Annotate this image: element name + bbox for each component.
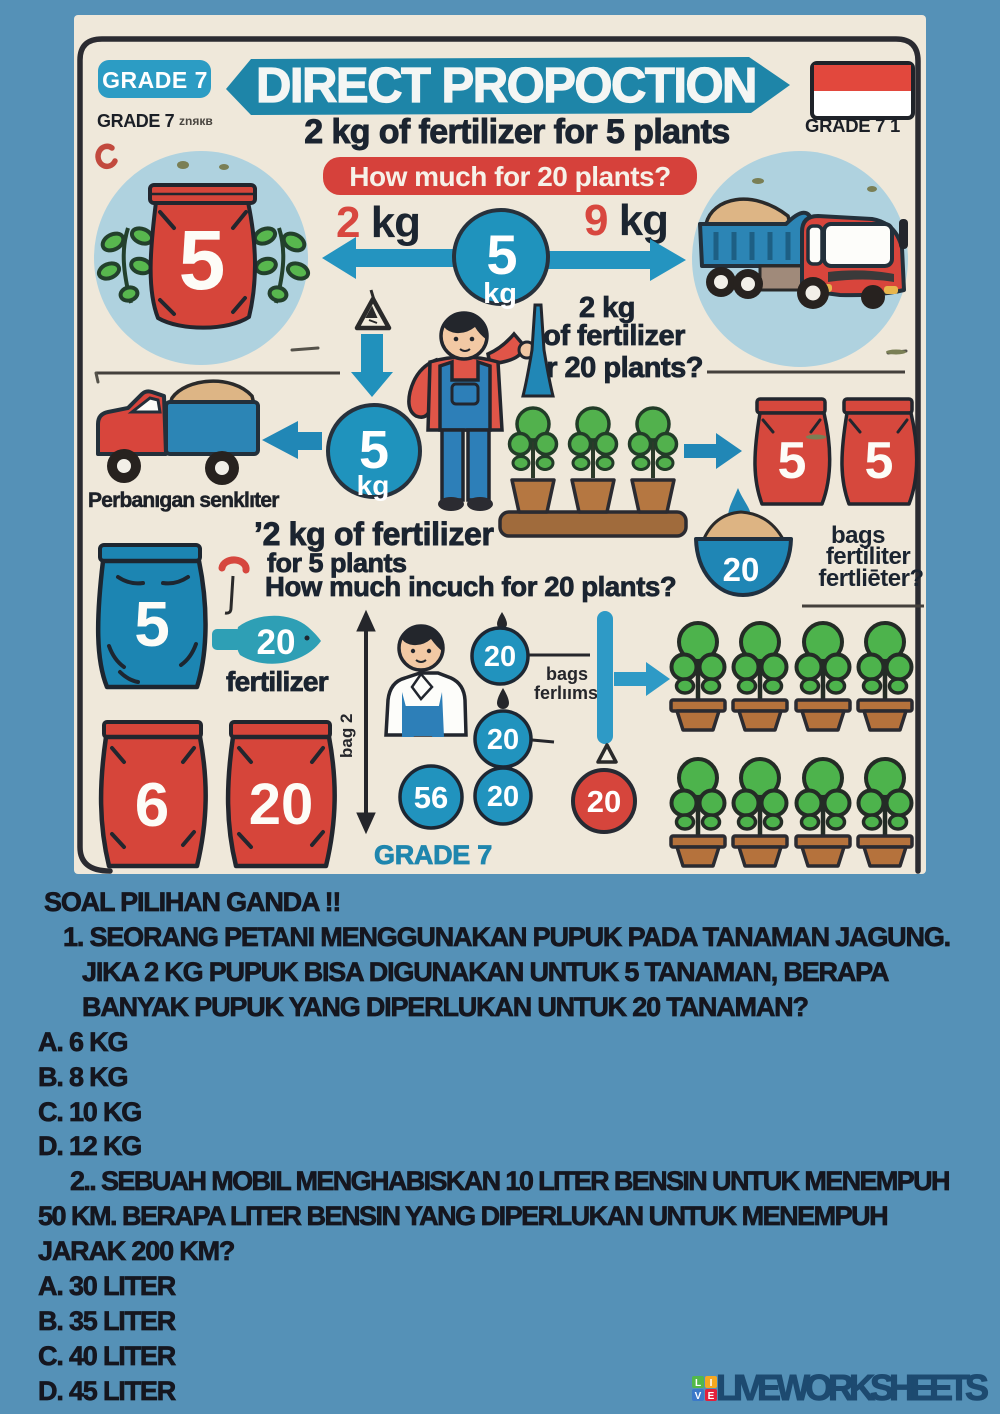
svg-text:L: L [695,1378,701,1389]
svg-text:fertliēter?: fertliēter? [818,565,923,592]
svg-text:GRADE 7 1: GRADE 7 1 [805,115,900,136]
svg-text:fertilizer: fertilizer [226,666,329,697]
svg-text:bag 2: bag 2 [337,714,356,758]
svg-text:GRADE 7: GRADE 7 [374,840,492,870]
svg-text:56: 56 [414,780,448,815]
svg-text:of fertilizer: of fertilizer [543,320,685,352]
svg-text:V: V [695,1391,702,1402]
svg-text:kg: kg [357,470,390,501]
svg-text:znякв: znякв [179,114,213,128]
svg-text:kg: kg [483,278,517,310]
svg-text:DIRECT PROPOCTION: DIRECT PROPOCTION [256,59,756,113]
svg-text:20: 20 [487,724,519,756]
svg-text:GRADE 7: GRADE 7 [102,67,208,93]
svg-text:20: 20 [484,641,516,673]
svg-text:20: 20 [257,623,296,662]
svg-text:5: 5 [179,213,226,307]
svg-text:I: I [710,1378,713,1389]
svg-text:How much for 20 plants?: How much for 20 plants? [349,161,670,192]
svg-text:Perbanıgan senklıter: Perbanıgan senklıter [88,489,279,512]
svg-text:2 kg: 2 kg [336,198,420,247]
svg-text:ferlııms: ferlııms [534,683,598,703]
svg-text:9 kg: 9 kg [584,196,668,245]
svg-text:20: 20 [487,781,519,813]
svg-text:bags: bags [546,664,588,684]
svg-text:20: 20 [587,784,621,819]
svg-text:5: 5 [778,432,807,490]
svg-text:How much incuch for 20 plants?: How much incuch for 20 plants? [265,571,676,602]
svg-text:6: 6 [135,771,169,840]
svg-text:20: 20 [723,551,760,588]
svg-text:5: 5 [486,223,517,286]
svg-text:5: 5 [134,588,170,660]
svg-text:20: 20 [249,772,314,837]
svg-text:5: 5 [865,432,894,490]
svg-text:E: E [708,1391,715,1402]
svg-text:GRADE 7: GRADE 7 [97,111,175,131]
svg-text:or 20 plants?: or 20 plants? [529,352,703,384]
svg-text:2 kg of fertilizer for 5 plant: 2 kg of fertilizer for 5 plants [304,113,729,151]
svg-text:’2 kg of fertilizer: ’2 kg of fertilizer [254,516,494,552]
